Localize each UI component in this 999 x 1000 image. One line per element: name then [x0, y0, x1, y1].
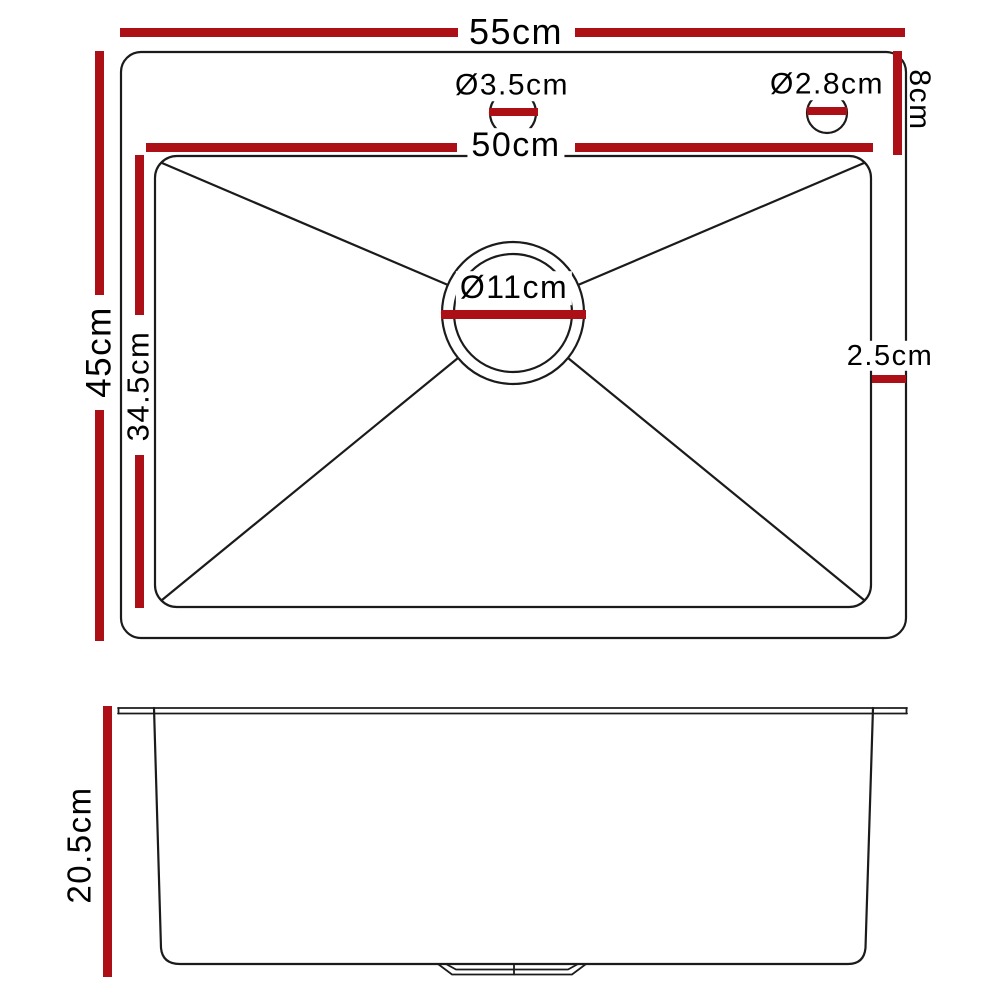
overall-width-label: 55cm	[469, 13, 563, 51]
dim-bar-8cm	[893, 51, 902, 155]
dim-bar-20p5cm	[103, 706, 112, 977]
inner-depth-label: 34.5cm	[123, 331, 156, 442]
dim-bar-hole-3p5cm	[489, 108, 538, 116]
crease-line-top-left	[162, 163, 448, 285]
drain-diameter-label: Ø11cm	[456, 271, 572, 305]
dim-bar-drain-11cm	[441, 310, 586, 319]
crease-line-top-right	[578, 163, 864, 285]
bowl-height-label: 20.5cm	[63, 786, 98, 903]
sink-dimension-diagram: 55cm 50cm Ø3.5cm Ø2.8cm Ø11cm 8cm 45cm 3…	[0, 0, 999, 1000]
dim-bar-hole-2p8cm	[807, 107, 847, 115]
dim-bar-50cm-right	[575, 143, 873, 152]
rim-top-right-label: 8cm	[903, 69, 935, 130]
crease-line-bottom-right	[568, 358, 864, 600]
inner-width-label: 50cm	[467, 128, 564, 164]
dim-bar-34p5cm-top	[135, 155, 144, 315]
rim-right-gap-label: 2.5cm	[843, 341, 937, 371]
dim-bar-2p5cm	[872, 375, 906, 383]
left-hole-diameter-label: Ø3.5cm	[451, 69, 573, 101]
dim-bar-45cm-top	[95, 51, 104, 295]
crease-line-bottom-left	[162, 358, 458, 600]
dim-bar-50cm-left	[146, 143, 457, 152]
dim-bar-34p5cm-bottom	[135, 455, 144, 608]
dim-bar-55cm-left	[120, 28, 458, 37]
right-hole-diameter-label: Ø2.8cm	[766, 68, 888, 100]
bowl-profile	[154, 708, 873, 964]
sink-side-view	[118, 708, 907, 975]
dim-bar-55cm-right	[575, 28, 905, 37]
dim-bar-45cm-bottom	[95, 410, 104, 641]
overall-depth-label: 45cm	[82, 306, 119, 398]
